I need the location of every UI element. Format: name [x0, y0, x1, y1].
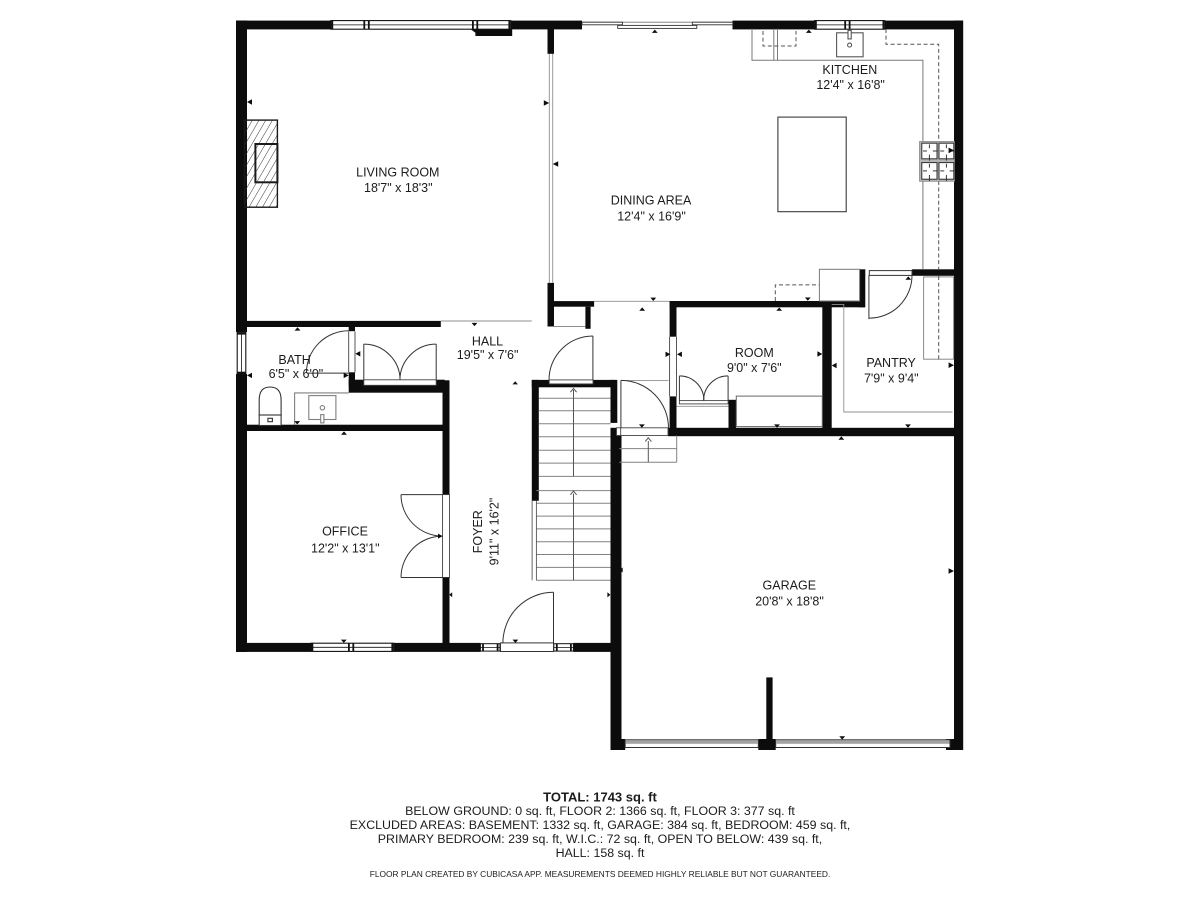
svg-text:12'4" x 16'9": 12'4" x 16'9" [617, 210, 686, 224]
svg-text:DINING AREA: DINING AREA [611, 193, 692, 207]
svg-text:PRIMARY BEDROOM: 239 sq. ft, W: PRIMARY BEDROOM: 239 sq. ft, W.I.C.: 72 … [378, 832, 822, 846]
svg-text:EXCLUDED AREAS: BASEMENT: 1332: EXCLUDED AREAS: BASEMENT: 1332 sq. ft, G… [350, 818, 851, 832]
svg-text:18'7" x 18'3": 18'7" x 18'3" [364, 181, 433, 195]
svg-text:LIVING ROOM: LIVING ROOM [356, 165, 439, 179]
svg-text:12'2" x 13'1": 12'2" x 13'1" [311, 541, 380, 555]
svg-text:12'4" x 16'8": 12'4" x 16'8" [816, 78, 885, 92]
svg-text:9'0" x 7'6": 9'0" x 7'6" [727, 361, 782, 375]
svg-text:BATH: BATH [278, 353, 310, 367]
svg-text:7'9" x 9'4": 7'9" x 9'4" [864, 371, 919, 385]
svg-text:19'5" x 7'6": 19'5" x 7'6" [457, 348, 519, 362]
svg-text:HALL: 158 sq. ft: HALL: 158 sq. ft [556, 846, 645, 860]
svg-text:TOTAL: 1743 sq. ft: TOTAL: 1743 sq. ft [543, 790, 657, 805]
svg-text:PANTRY: PANTRY [866, 356, 916, 370]
svg-text:6'5" x 6'0": 6'5" x 6'0" [269, 367, 324, 381]
svg-text:KITCHEN: KITCHEN [822, 63, 877, 77]
svg-text:ROOM: ROOM [735, 346, 774, 360]
svg-text:OFFICE: OFFICE [322, 525, 368, 539]
svg-text:FOYER: FOYER [471, 510, 485, 553]
svg-text:20'8" x 18'8": 20'8" x 18'8" [755, 594, 824, 608]
svg-text:GARAGE: GARAGE [763, 579, 817, 593]
svg-text:9'11" x 16'2": 9'11" x 16'2" [487, 498, 501, 566]
svg-text:FLOOR PLAN CREATED BY CUBICASA: FLOOR PLAN CREATED BY CUBICASA APP. MEAS… [370, 869, 831, 879]
svg-text:HALL: HALL [472, 334, 503, 348]
svg-text:BELOW GROUND: 0 sq. ft, FLOOR: BELOW GROUND: 0 sq. ft, FLOOR 2: 1366 sq… [405, 804, 795, 818]
